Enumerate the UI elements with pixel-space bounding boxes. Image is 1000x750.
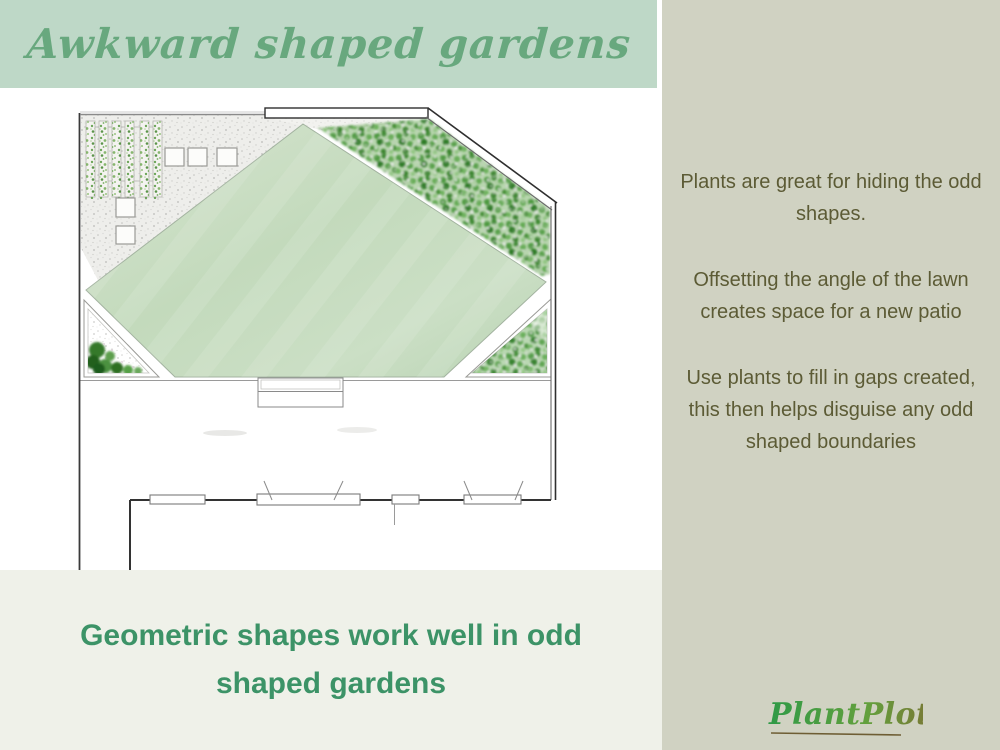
info-paragraph-2: Offsetting the angle of the lawn creates…	[674, 264, 988, 329]
page-title: Awkward shaped gardens	[25, 20, 632, 68]
fence-panel-top	[265, 108, 428, 118]
logo-underline	[771, 733, 901, 735]
pencil-smudge	[203, 430, 247, 436]
house-wall	[130, 481, 551, 570]
pencil-smudge	[337, 427, 377, 433]
logo-text: PlantPlots	[768, 697, 923, 732]
caption-banner: Geometric shapes work well in odd shaped…	[0, 570, 662, 750]
info-paragraph-1: Plants are great for hiding the odd shap…	[674, 166, 988, 231]
garden-plan-area	[0, 88, 662, 570]
info-paragraph-3: Use plants to fill in gaps created, this…	[674, 362, 988, 459]
plantplots-logo: PlantPlots	[763, 688, 923, 744]
small-window	[392, 495, 419, 504]
caption-headline: Geometric shapes work well in odd shaped…	[24, 612, 638, 708]
garden-steps	[258, 378, 343, 407]
garden-plan-drawing	[0, 88, 662, 570]
header-banner: Awkward shaped gardens	[0, 0, 657, 88]
french-door	[257, 494, 360, 505]
info-panel: Plants are great for hiding the odd shap…	[662, 0, 1000, 750]
infographic-page: Awkward shaped gardens	[0, 0, 1000, 750]
window	[150, 495, 205, 504]
window	[464, 495, 521, 504]
